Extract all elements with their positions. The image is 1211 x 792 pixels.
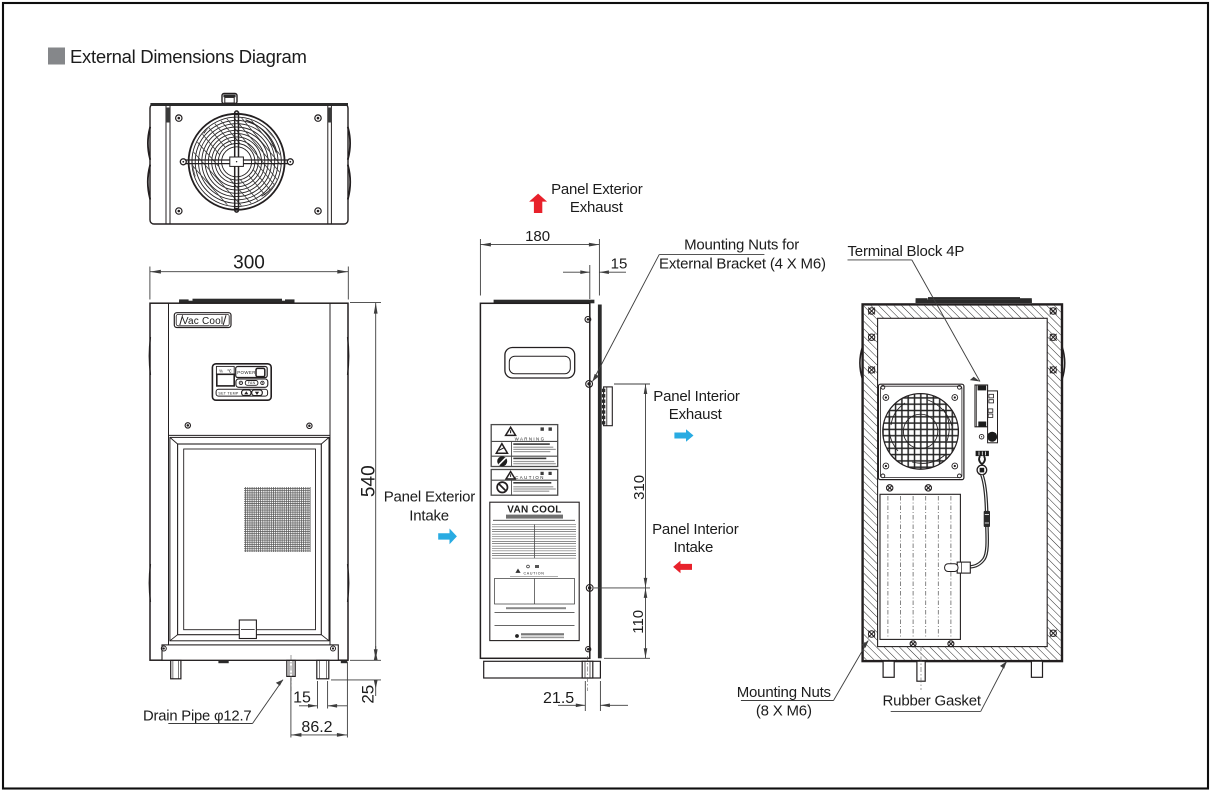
svg-text:Drain Pipe φ12.7: Drain Pipe φ12.7 xyxy=(143,708,251,724)
svg-text:540: 540 xyxy=(358,465,379,497)
svg-text:Intake: Intake xyxy=(673,539,713,556)
svg-text:Panel Exterior: Panel Exterior xyxy=(551,181,643,198)
svg-text:WARNING: WARNING xyxy=(515,436,546,441)
svg-text:Exhaust: Exhaust xyxy=(570,199,624,216)
svg-text:CAUTION: CAUTION xyxy=(515,475,545,480)
svg-text:Terminal Block 4P: Terminal Block 4P xyxy=(848,243,965,260)
svg-text:25: 25 xyxy=(358,685,377,704)
svg-text:SET TEMP: SET TEMP xyxy=(218,392,239,396)
svg-text:Panel Interior: Panel Interior xyxy=(652,521,739,538)
svg-text:21.5: 21.5 xyxy=(543,690,574,707)
svg-text:POWER: POWER xyxy=(237,370,256,375)
svg-text:External Dimensions Diagram: External Dimensions Diagram xyxy=(70,46,307,67)
svg-text:Panel Interior: Panel Interior xyxy=(653,388,740,405)
svg-text:Exhaust: Exhaust xyxy=(669,406,723,423)
svg-text:℃: ℃ xyxy=(227,369,232,374)
svg-text:86.2: 86.2 xyxy=(301,719,332,736)
svg-text:Mounting Nuts for: Mounting Nuts for xyxy=(684,236,799,253)
svg-text:15: 15 xyxy=(611,256,628,273)
svg-text:Rubber Gasket: Rubber Gasket xyxy=(883,692,982,709)
svg-text:CAUTION: CAUTION xyxy=(523,572,544,576)
svg-text:180: 180 xyxy=(525,228,550,245)
svg-text:15: 15 xyxy=(293,690,311,707)
svg-text:300: 300 xyxy=(233,253,265,274)
svg-text:%: % xyxy=(219,369,223,374)
svg-text:Vac Cool: Vac Cool xyxy=(182,316,223,327)
svg-text:Mounting Nuts: Mounting Nuts xyxy=(737,684,831,701)
svg-text:Panel Exterior: Panel Exterior xyxy=(384,489,476,506)
svg-text:110: 110 xyxy=(630,610,647,634)
svg-text:(8 X M6): (8 X M6) xyxy=(756,702,812,719)
svg-text:VAN COOL: VAN COOL xyxy=(507,504,561,515)
svg-text:Intake: Intake xyxy=(409,508,449,525)
svg-text:FAN: FAN xyxy=(248,381,256,385)
svg-text:External Bracket (4 X M6): External Bracket (4 X M6) xyxy=(659,255,826,272)
svg-text:310: 310 xyxy=(631,475,648,500)
